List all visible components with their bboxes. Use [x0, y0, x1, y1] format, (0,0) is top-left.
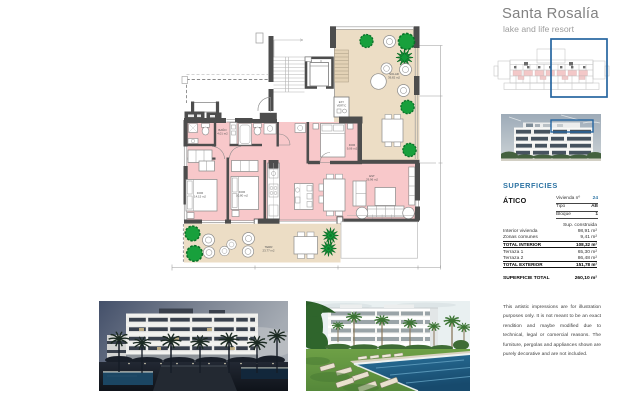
svg-text:29,96 m2: 29,96 m2 — [366, 177, 378, 181]
svg-text:23,77 m2: 23,77 m2 — [262, 248, 274, 252]
svg-text:4,01 m2: 4,01 m2 — [217, 131, 228, 135]
svg-text:14,15 m2: 14,15 m2 — [194, 194, 206, 198]
svg-text:39,82 m2: 39,82 m2 — [388, 75, 400, 79]
svg-text:9,06 m2: 9,06 m2 — [347, 146, 358, 150]
svg-text:EXT.: EXT. — [339, 100, 345, 104]
svg-text:10,80 m2: 10,80 m2 — [236, 193, 248, 197]
svg-text:VERTIC: VERTIC — [337, 104, 347, 108]
